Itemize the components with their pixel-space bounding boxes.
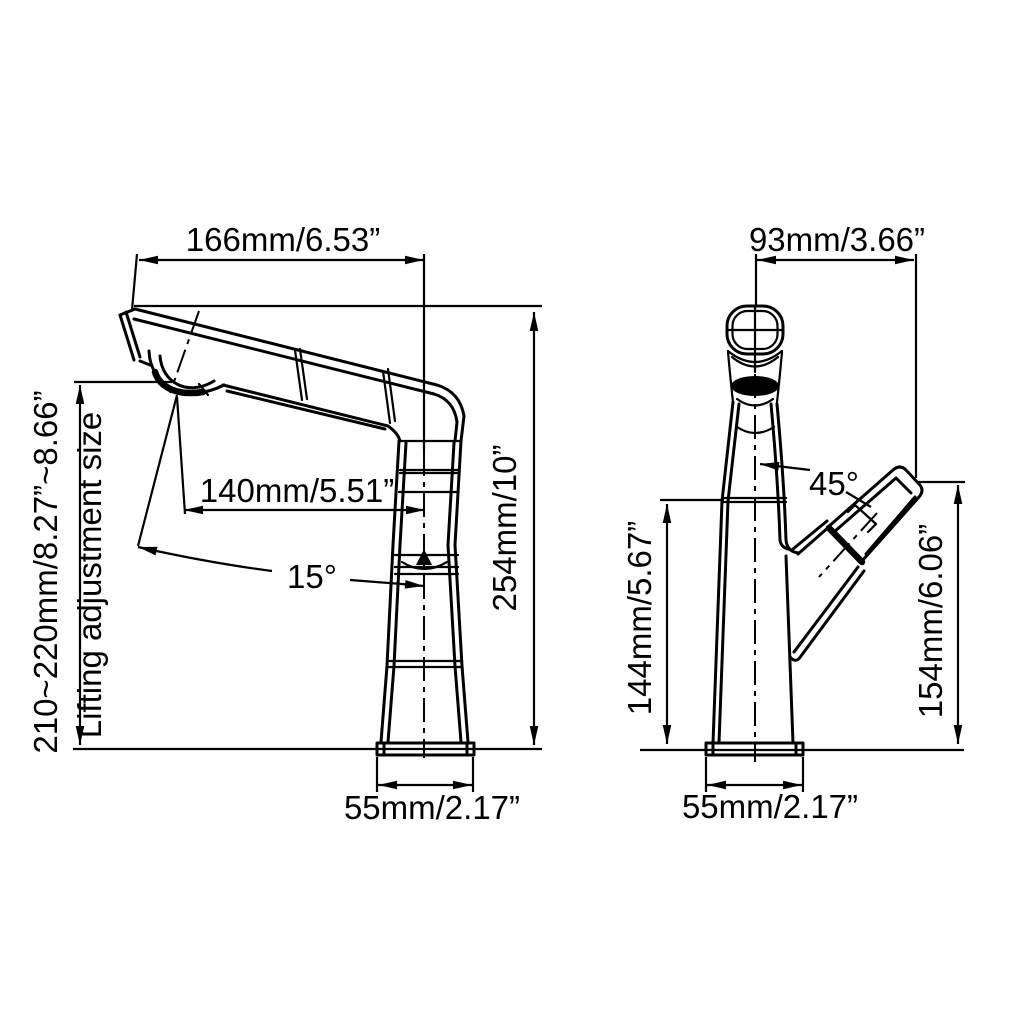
dim-side-angle-ray <box>138 395 177 546</box>
dim-side-overall-height: 254mm/10” <box>134 306 542 745</box>
dim-side-angle-arc-right <box>350 580 424 586</box>
faucet-dimension-diagram: 166mm/6.53” 254mm/10” 210~220mm/8.27”~8.… <box>0 0 1024 1024</box>
dim-side-spout-width-extensions <box>132 254 424 452</box>
side-lifting-note-label: Lifting adjustment size <box>71 412 108 739</box>
dim-front-body-height: 144mm/5.67” <box>621 500 724 744</box>
dim-front-base-width: 55mm/2.17” <box>682 757 858 825</box>
side-spout-width-label: 166mm/6.53” <box>186 221 380 258</box>
front-view-faucet <box>706 306 922 762</box>
front-handle-axis-centerline <box>819 513 877 577</box>
dim-side-base-extensions <box>377 757 473 792</box>
dim-side-spout-reach-extension <box>177 397 185 514</box>
side-base-width-label: 55mm/2.17” <box>344 789 520 826</box>
dim-side-spout-width: 166mm/6.53” <box>132 221 424 452</box>
technical-drawing-page: 166mm/6.53” 254mm/10” 210~220mm/8.27”~8.… <box>0 0 1024 1024</box>
dim-front-base-extensions <box>706 757 803 792</box>
front-handle-height-label: 154mm/6.06” <box>912 524 949 718</box>
side-view-faucet <box>120 309 474 755</box>
front-base-width-label: 55mm/2.17” <box>682 788 858 825</box>
front-head-offset-label: 93mm/3.66” <box>749 221 925 258</box>
front-handle-arm <box>793 521 830 554</box>
dim-front-handle-angle-leader <box>760 464 810 470</box>
dim-side-base-width: 55mm/2.17” <box>344 757 520 826</box>
side-sprayer-knob <box>149 351 224 393</box>
side-spout-outline <box>120 309 464 441</box>
front-body-height-label: 144mm/5.67” <box>621 521 658 715</box>
front-handle-angle-label: 45° <box>809 465 859 502</box>
side-lifting-range-label: 210~220mm/8.27”~8.66” <box>27 390 64 753</box>
dim-front-handle-height: 154mm/6.06” <box>912 482 965 744</box>
dim-side-lifting-range: 210~220mm/8.27”~8.66” Lifting adjustment… <box>27 382 172 754</box>
side-spout-reach-label: 140mm/5.51” <box>200 472 394 509</box>
side-overall-height-label: 254mm/10” <box>486 445 523 612</box>
dim-side-angle-arc-left <box>138 547 272 571</box>
side-sprayer-axis-centerline <box>170 311 199 393</box>
front-handle-base-face <box>829 528 862 562</box>
side-spout-angle-label: 15° <box>287 558 337 595</box>
front-handle-bracket <box>790 567 864 660</box>
